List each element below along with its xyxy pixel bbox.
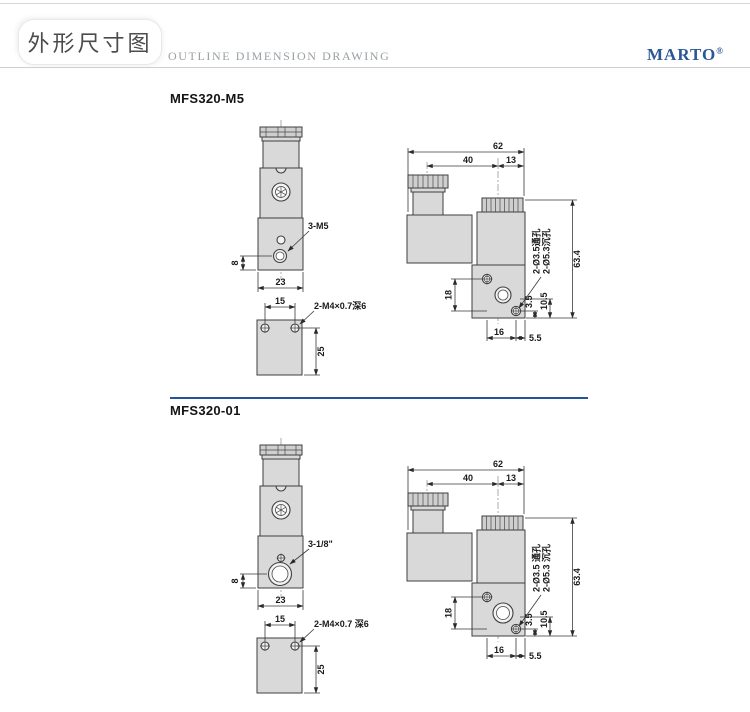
dimension-drawing-mfs320-m5: 3-M5 8 23 15 2-M4×0.7深6 25 (168, 112, 598, 392)
bottom-view: 15 2-M4×0.7深6 25 (257, 296, 366, 375)
side-view: 62 40 13 63.4 2-Ø3.5 通孔 2-Ø5.3 沉孔 18 3.5… (407, 459, 582, 661)
dim-62: 62 (493, 141, 503, 151)
dim-16: 16 (494, 327, 504, 337)
dim-10-5: 10.5 (539, 292, 549, 310)
section-divider (170, 397, 588, 399)
mounting-holes-label: 2-M4×0.7 深6 (314, 618, 369, 629)
page-subtitle: OUTLINE DIMENSION DRAWING (168, 49, 390, 64)
dim-5-5: 5.5 (529, 333, 542, 343)
dim-23: 23 (275, 595, 285, 605)
section-title-mfs320-01: MFS320-01 (170, 403, 241, 418)
dim-3-5: 3.5 (524, 613, 534, 626)
dim-63-4: 63.4 (572, 568, 582, 586)
through-hole-note: 2-Ø3.5通孔 (531, 228, 542, 274)
dim-40: 40 (463, 473, 473, 483)
through-hole-note: 2-Ø3.5 通孔 (531, 544, 542, 592)
header-rule (0, 67, 750, 68)
section-title-mfs320-m5: MFS320-M5 (170, 91, 244, 106)
counterbore-note: 2-Ø5.3沉孔 (541, 228, 552, 274)
page-title-box: 外形尺寸图 (18, 19, 162, 65)
dim-63-4: 63.4 (572, 250, 582, 268)
page-title: 外形尺寸图 (27, 26, 152, 58)
dim-23: 23 (275, 277, 285, 287)
dim-8: 8 (230, 578, 240, 583)
dim-10-5: 10.5 (539, 610, 549, 628)
dim-13: 13 (506, 473, 516, 483)
dim-5-5: 5.5 (529, 651, 542, 661)
pilot-hole (277, 236, 285, 244)
mounting-holes-label: 2-M4×0.7深6 (314, 300, 366, 311)
port-label: 3-1/8" (308, 539, 333, 549)
front-view: 3-1/8" 8 23 (230, 438, 333, 610)
dim-15: 15 (275, 614, 285, 624)
front-view: 3-M5 8 23 (230, 120, 329, 292)
dim-16: 16 (494, 645, 504, 655)
registered-mark: ® (716, 46, 724, 56)
dim-13: 13 (506, 155, 516, 165)
dim-62: 62 (493, 459, 503, 469)
dimension-drawing-mfs320-01: 3-1/8" 8 23 15 2-M4×0.7 深6 25 (168, 430, 598, 710)
dim-3-5: 3.5 (524, 295, 534, 308)
counterbore-note: 2-Ø5.3 沉孔 (541, 544, 552, 592)
dim-18: 18 (444, 608, 454, 618)
dim-25: 25 (316, 664, 326, 674)
port-label: 3-M5 (308, 221, 329, 231)
dim-8: 8 (230, 260, 240, 265)
brand-logo: MARTO® (647, 45, 724, 65)
dim-18: 18 (444, 290, 454, 300)
side-view: 62 40 13 63.4 2-Ø3.5通孔 2-Ø5.3沉孔 18 3.5 1… (407, 141, 582, 343)
bottom-view: 15 2-M4×0.7 深6 25 (257, 614, 369, 693)
dim-25: 25 (316, 346, 326, 356)
dim-40: 40 (463, 155, 473, 165)
page-top-rule (0, 3, 750, 4)
dim-15: 15 (275, 296, 285, 306)
